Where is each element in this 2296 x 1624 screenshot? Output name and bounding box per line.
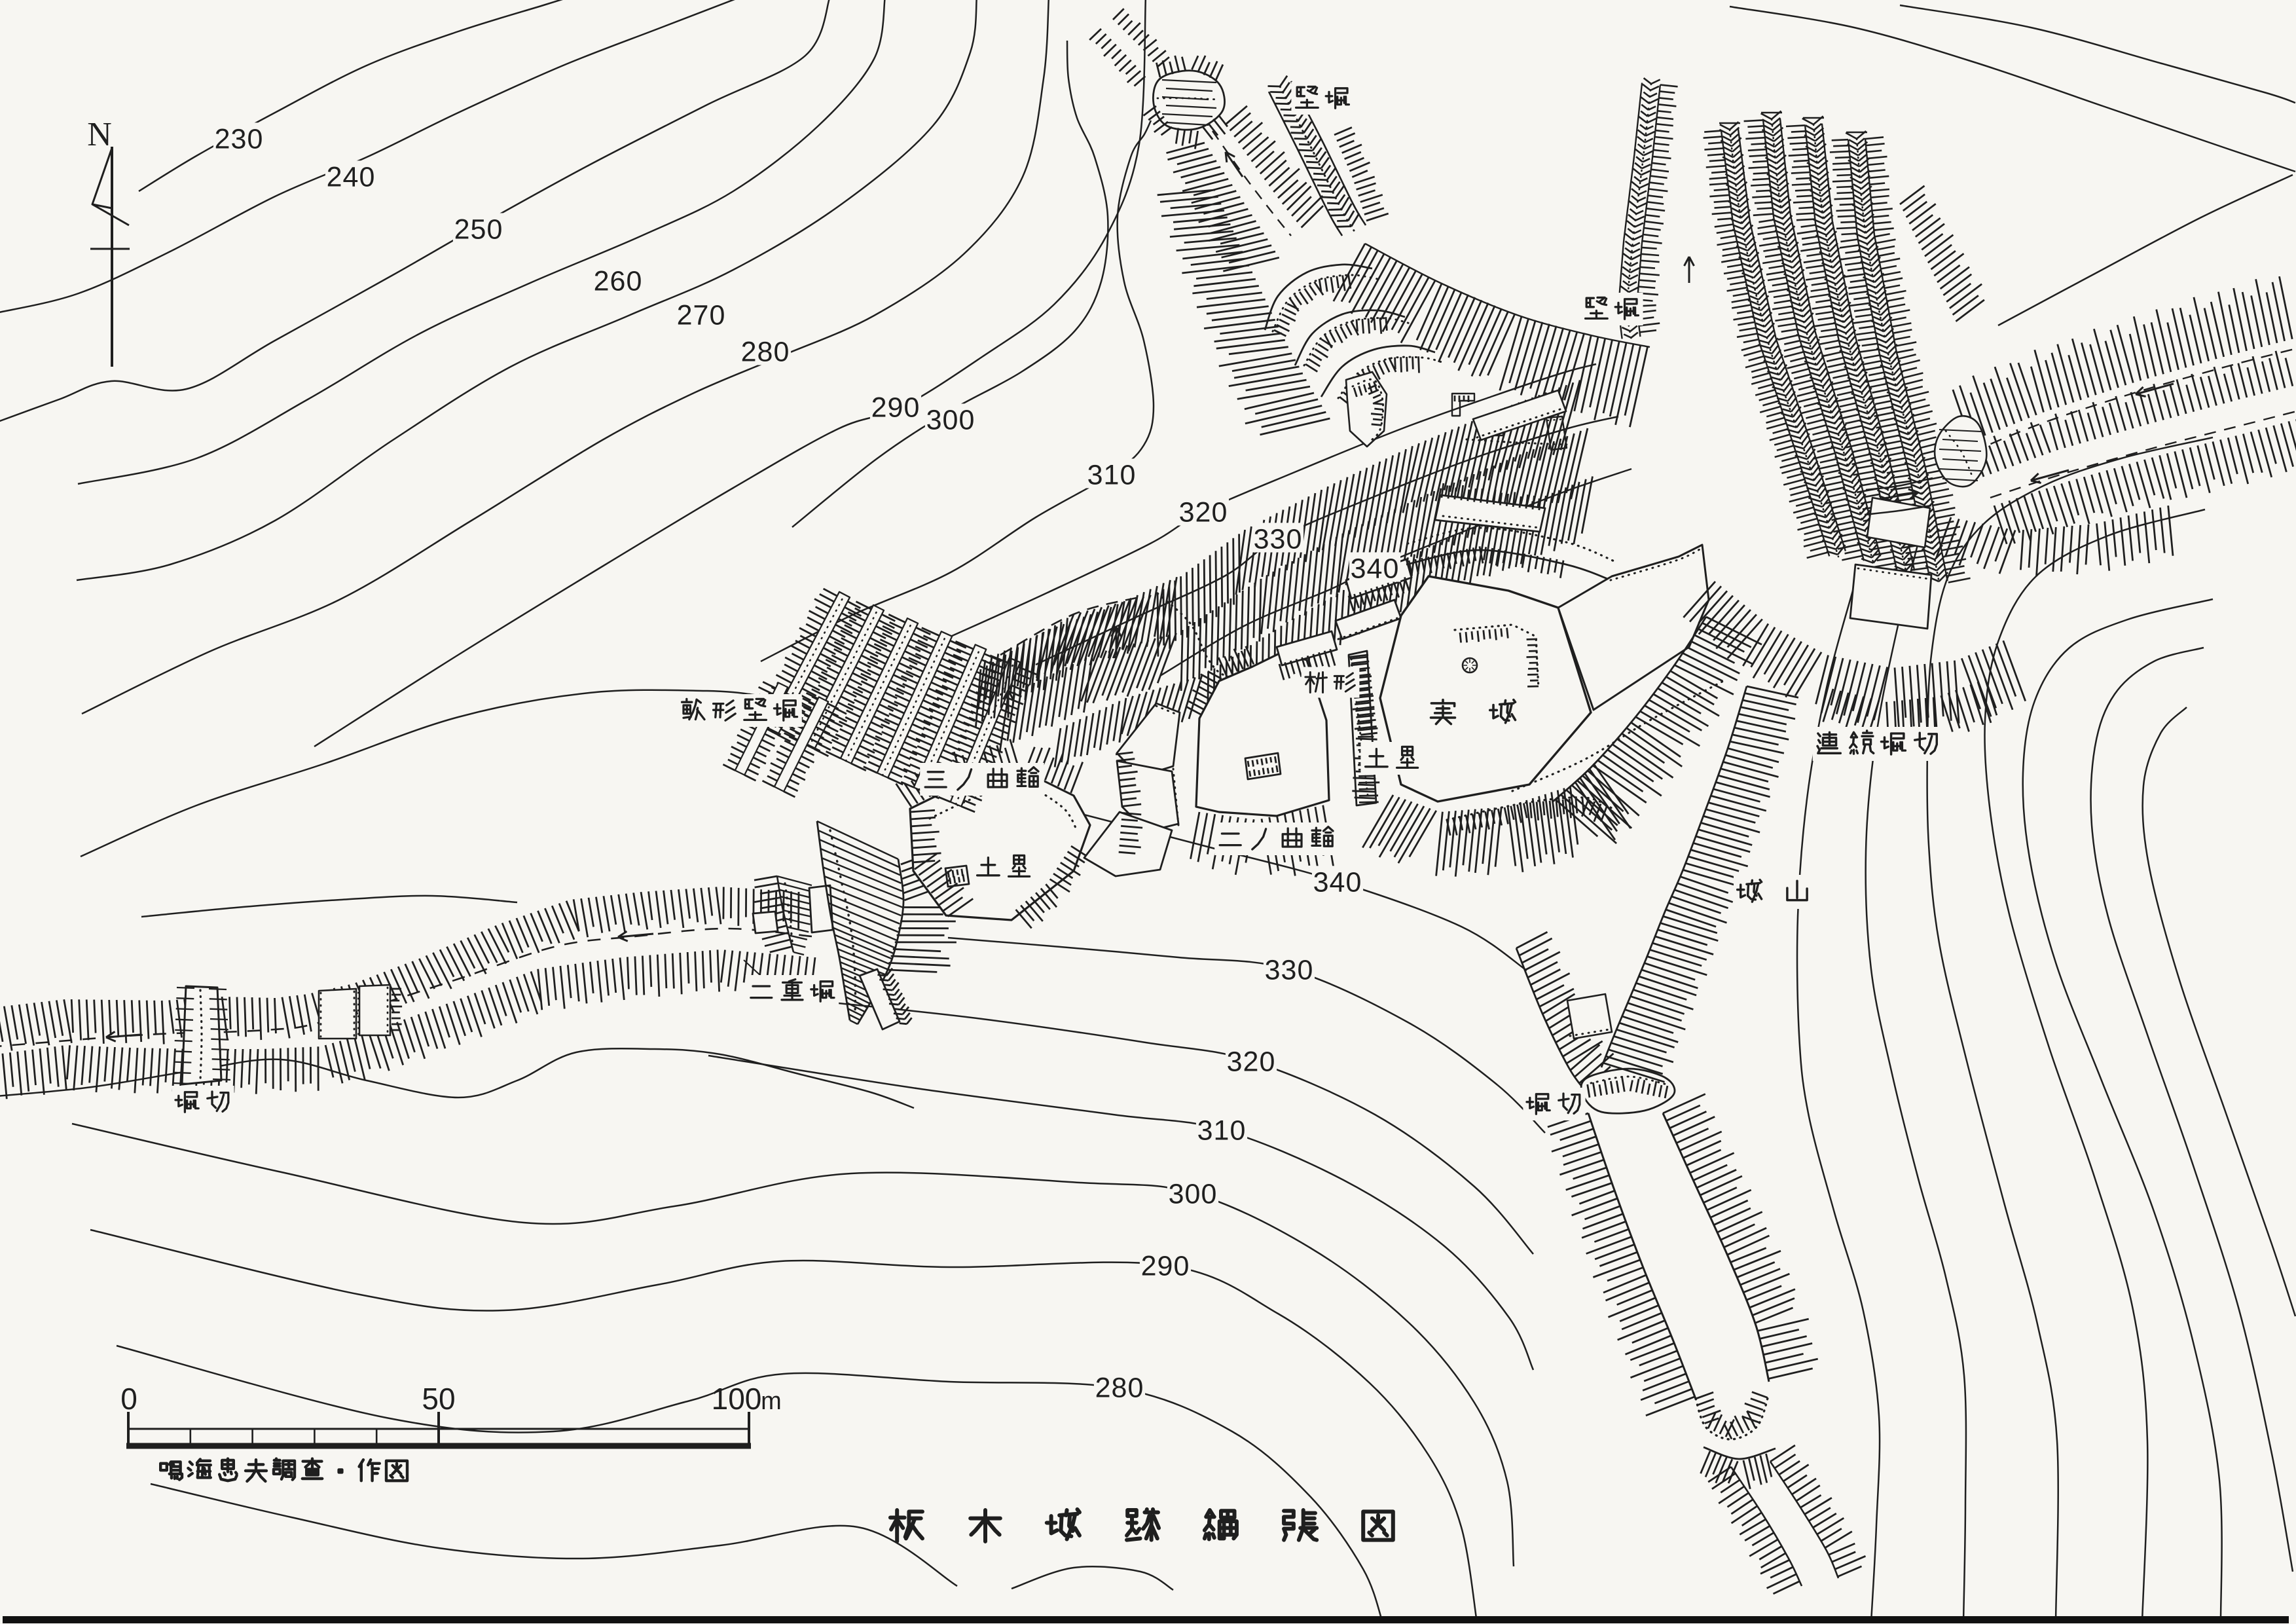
svg-text:260: 260	[594, 266, 643, 297]
svg-text:50: 50	[422, 1382, 455, 1416]
svg-text:280: 280	[741, 337, 790, 368]
svg-text:340: 340	[1351, 553, 1400, 585]
svg-text:100: 100	[712, 1382, 762, 1416]
svg-text:m: m	[761, 1388, 782, 1415]
svg-text:N: N	[87, 116, 112, 153]
svg-text:310: 310	[1087, 460, 1137, 491]
svg-text:270: 270	[677, 300, 726, 331]
svg-text:280: 280	[1095, 1373, 1144, 1404]
svg-text:330: 330	[1265, 955, 1314, 986]
svg-text:230: 230	[215, 124, 264, 155]
svg-text:340: 340	[1313, 867, 1362, 898]
svg-text:320: 320	[1227, 1046, 1276, 1078]
svg-text:300: 300	[926, 405, 975, 436]
svg-text:310: 310	[1197, 1115, 1247, 1147]
svg-text:330: 330	[1254, 524, 1303, 555]
svg-text:320: 320	[1179, 497, 1228, 528]
svg-text:0: 0	[120, 1382, 137, 1416]
svg-text:250: 250	[454, 214, 503, 246]
svg-text:290: 290	[1141, 1251, 1190, 1282]
svg-text:240: 240	[327, 162, 376, 193]
svg-text:300: 300	[1169, 1179, 1218, 1210]
svg-text:290: 290	[871, 392, 920, 424]
